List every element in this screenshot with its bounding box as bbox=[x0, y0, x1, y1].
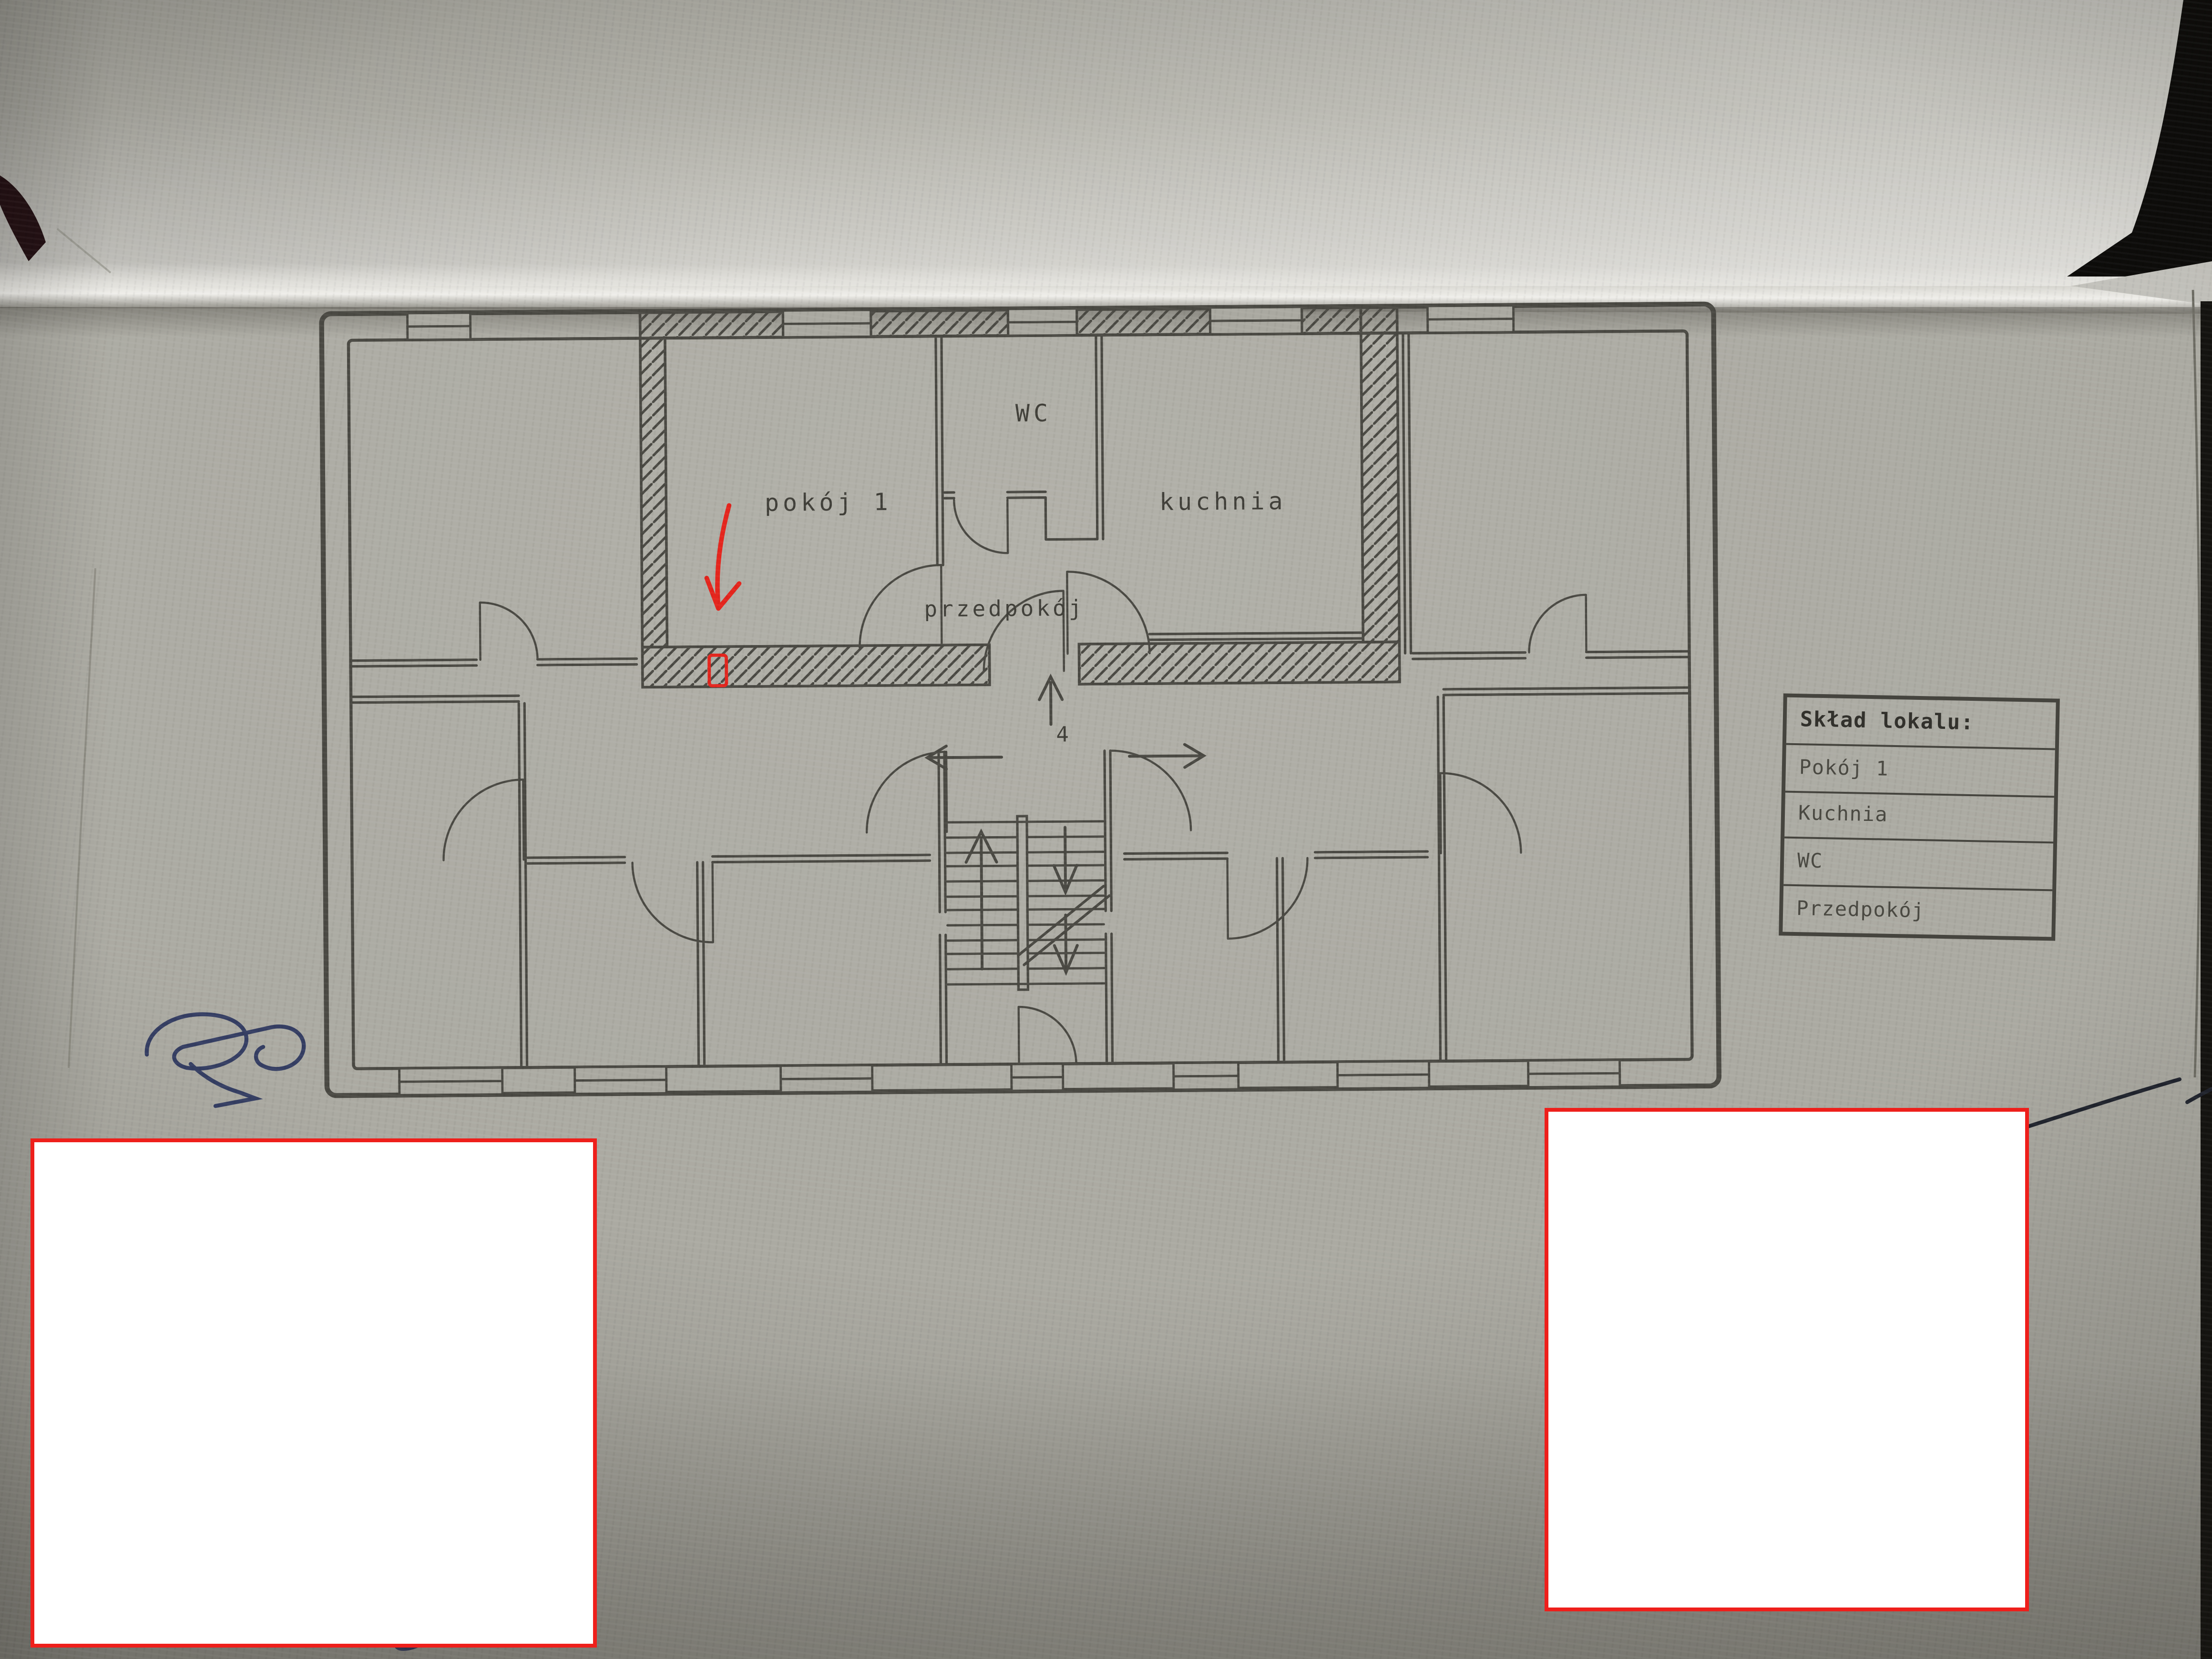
legend-table: Skład lokalu: Pokój 1 Kuchnia WC Przedpo… bbox=[1779, 693, 2060, 941]
legend-title: Skład lokalu: bbox=[1786, 697, 2056, 748]
legend-item-kuchnia: Kuchnia bbox=[1784, 790, 2054, 842]
legend-item-wc: WC bbox=[1783, 837, 2053, 890]
photographed-document: pokój 1 WC kuchnia przedpokój 4 Skład lo… bbox=[0, 0, 2212, 1659]
legend-item-pokoj1: Pokój 1 bbox=[1785, 743, 2055, 795]
redaction-box-left bbox=[31, 1138, 597, 1648]
redaction-box-right bbox=[1545, 1108, 2029, 1611]
legend-item-przedpokoj: Przedpokój bbox=[1782, 884, 2052, 937]
